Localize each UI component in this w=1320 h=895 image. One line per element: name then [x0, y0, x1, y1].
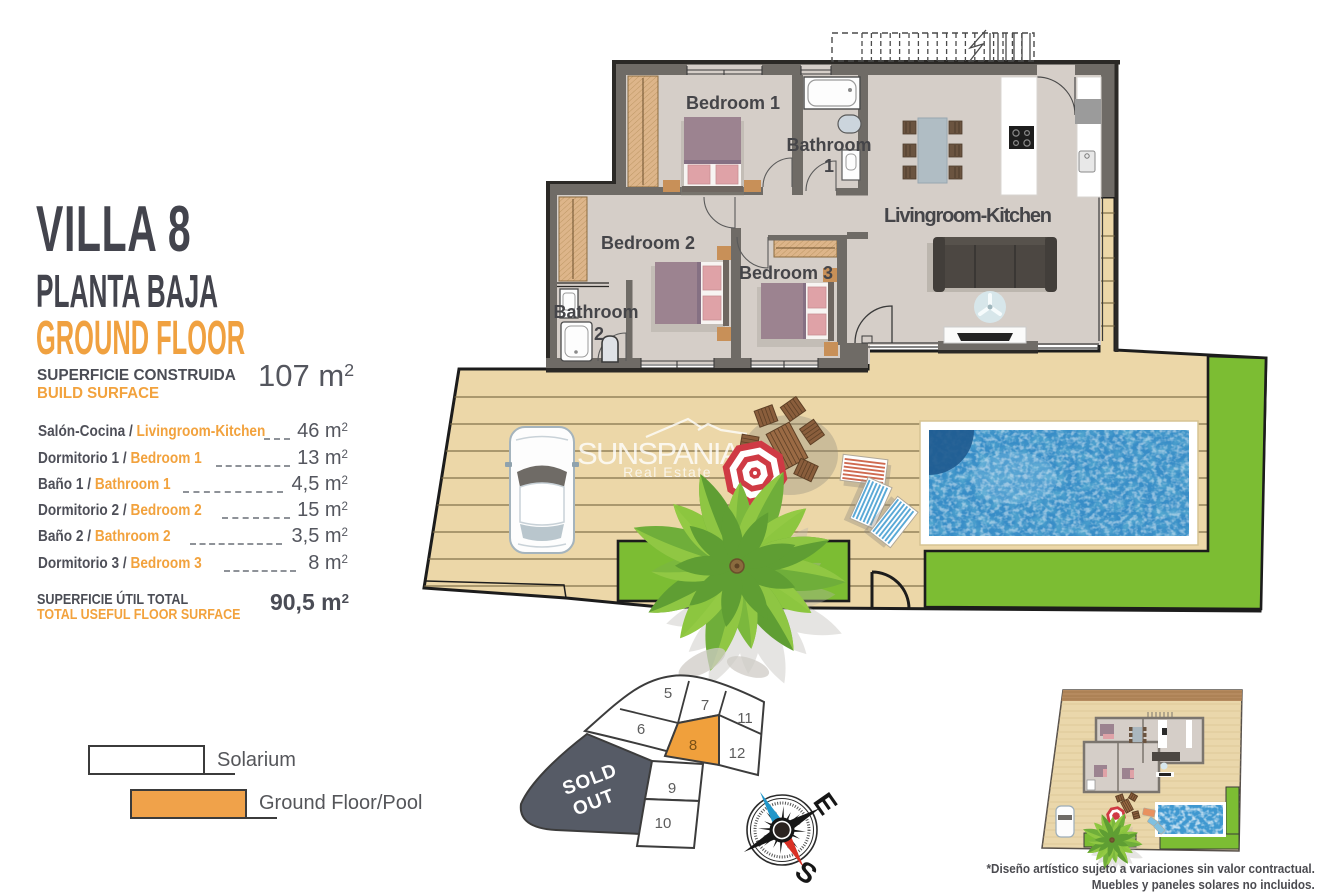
svg-text:1: 1: [824, 156, 834, 176]
svg-text:Real Estate: Real Estate: [623, 464, 712, 480]
svg-text:6: 6: [637, 721, 645, 738]
svg-text:9: 9: [668, 780, 676, 797]
svg-text:2: 2: [594, 324, 604, 344]
svg-text:Livingroom-Kitchen: Livingroom-Kitchen: [884, 205, 1052, 227]
svg-text:8: 8: [689, 737, 697, 754]
svg-text:7: 7: [701, 697, 709, 714]
svg-text:Bedroom 2: Bedroom 2: [601, 233, 695, 253]
svg-text:5: 5: [664, 685, 672, 702]
svg-text:Bedroom 3: Bedroom 3: [739, 263, 833, 283]
svg-text:Bathroom: Bathroom: [787, 135, 872, 155]
svg-text:11: 11: [737, 710, 753, 727]
svg-text:Bedroom 1: Bedroom 1: [686, 93, 780, 113]
svg-text:12: 12: [729, 745, 746, 762]
svg-text:Bathroom: Bathroom: [554, 302, 639, 322]
svg-text:10: 10: [655, 815, 672, 832]
